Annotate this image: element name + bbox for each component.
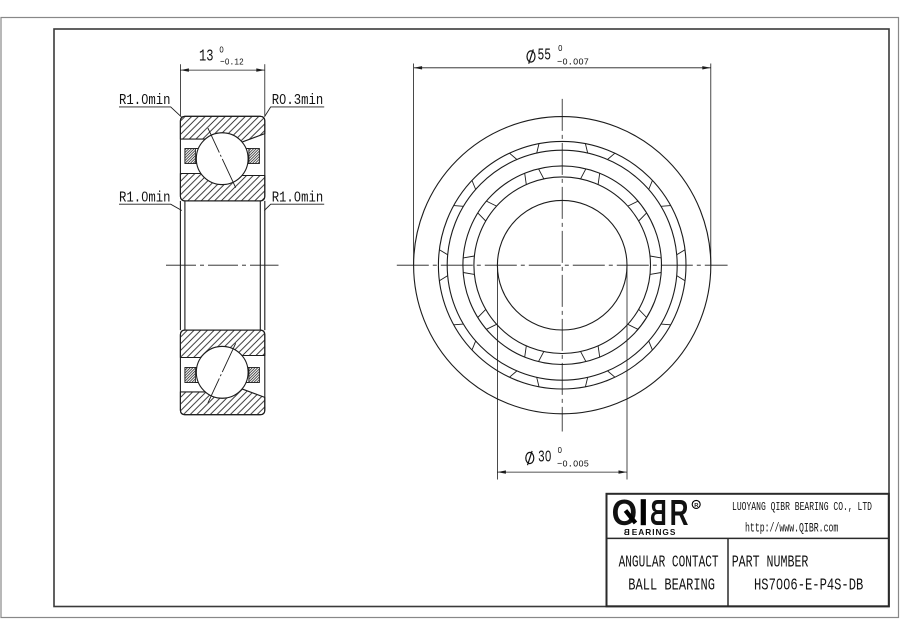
svg-text:EARINGS: EARINGS [632, 527, 676, 537]
svg-text:B: B [624, 527, 630, 537]
svg-text:13: 13 [199, 47, 214, 66]
svg-text:http://www.QIBR.com: http://www.QIBR.com [745, 522, 838, 536]
svg-text:55: 55 [538, 47, 552, 66]
svg-text:30: 30 [538, 449, 552, 468]
svg-text:BALL BEARING: BALL BEARING [628, 577, 715, 596]
svg-text:LUOYANG QIBR BEARING CO., LTD: LUOYANG QIBR BEARING CO., LTD [732, 500, 872, 514]
svg-text:−0.007: −0.007 [557, 57, 589, 68]
svg-text:−0.005: −0.005 [557, 459, 589, 470]
svg-text:PART NUMBER: PART NUMBER [732, 554, 809, 573]
svg-text:HS7006-E-P4S-DB: HS7006-E-P4S-DB [754, 577, 863, 596]
svg-text:−0.12: −0.12 [220, 57, 244, 68]
svg-text:ANGULAR CONTACT: ANGULAR CONTACT [619, 554, 719, 573]
